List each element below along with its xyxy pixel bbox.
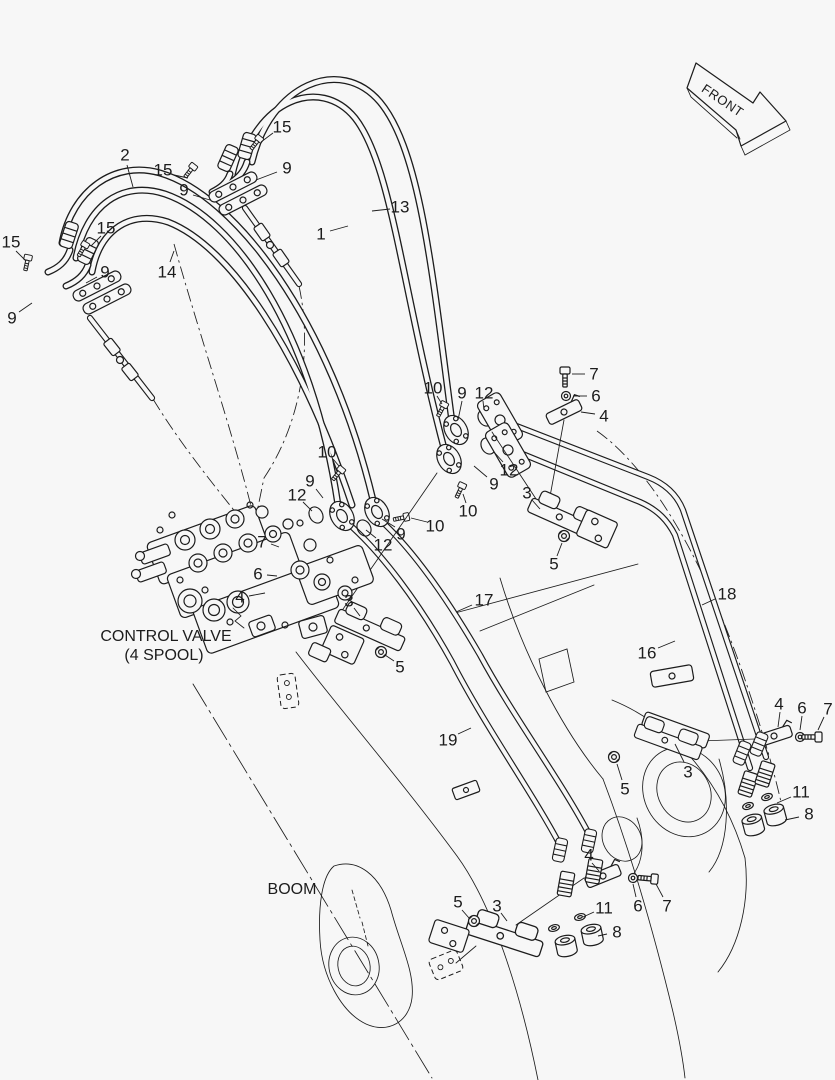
parts-diagram: FRONT CONTROL VALVE (4 SPOOL) BOOM 21515… bbox=[0, 0, 835, 1080]
callout-9-10: 9 bbox=[7, 309, 16, 328]
callout-9-13: 9 bbox=[457, 384, 466, 403]
callout-10-24: 10 bbox=[426, 517, 445, 536]
callout-1-6: 1 bbox=[316, 225, 325, 244]
callout-11-43: 11 bbox=[792, 783, 810, 802]
callout-16-36: 16 bbox=[638, 644, 657, 663]
control-valve-label-line2: (4 SPOOL) bbox=[124, 647, 203, 664]
callout-9-4: 9 bbox=[179, 181, 188, 200]
callout-8-44: 8 bbox=[804, 805, 813, 824]
callout-15-8: 15 bbox=[97, 219, 116, 238]
callout-4-40: 4 bbox=[774, 695, 783, 714]
callout-10-20: 10 bbox=[318, 443, 337, 462]
callout-5-33: 5 bbox=[395, 658, 404, 677]
callout-4-45: 4 bbox=[584, 846, 593, 865]
callout-12-22: 12 bbox=[288, 486, 307, 505]
callout-3-51: 3 bbox=[492, 897, 501, 916]
nut-5 bbox=[469, 916, 480, 927]
callout-2-0: 2 bbox=[120, 146, 129, 165]
callout-6-46: 6 bbox=[633, 897, 642, 916]
callout-6-16: 6 bbox=[591, 387, 600, 406]
callout-19-37: 19 bbox=[439, 731, 458, 750]
callout-5-50: 5 bbox=[453, 893, 462, 912]
washer-6 bbox=[562, 392, 571, 401]
callout-10-12: 10 bbox=[424, 379, 443, 398]
callout-11-48: 11 bbox=[595, 899, 613, 918]
callout-5-28: 5 bbox=[549, 555, 558, 574]
callout-3-32: 3 bbox=[344, 592, 353, 611]
callout-12-18: 12 bbox=[500, 461, 519, 480]
callout-10-23: 10 bbox=[459, 502, 478, 521]
callout-12-14: 12 bbox=[475, 384, 494, 403]
callout-3-38: 3 bbox=[683, 763, 692, 782]
nut-5 bbox=[609, 752, 620, 763]
callout-15-7: 15 bbox=[2, 233, 21, 252]
callout-7-42: 7 bbox=[823, 700, 832, 719]
callout-9-3: 9 bbox=[282, 159, 291, 178]
boom-label: BOOM bbox=[268, 881, 317, 898]
callout-8-49: 8 bbox=[612, 923, 621, 942]
callout-6-41: 6 bbox=[797, 699, 806, 718]
washer-6 bbox=[629, 874, 638, 883]
callout-9-21: 9 bbox=[305, 472, 314, 491]
callout-4-17: 4 bbox=[599, 407, 608, 426]
callout-14-11: 14 bbox=[158, 263, 177, 282]
nut-5 bbox=[376, 647, 387, 658]
boom-piping-diagram: FRONT CONTROL VALVE (4 SPOOL) BOOM 21515… bbox=[0, 0, 835, 1080]
callout-12-26: 12 bbox=[374, 536, 393, 555]
callout-9-25: 9 bbox=[396, 525, 405, 544]
callout-5-39: 5 bbox=[620, 780, 629, 799]
nut-5 bbox=[559, 531, 570, 542]
callout-15-1: 15 bbox=[154, 161, 173, 180]
callout-7-15: 7 bbox=[589, 365, 598, 384]
callout-13-5: 13 bbox=[391, 198, 410, 217]
callout-15-2: 15 bbox=[273, 118, 292, 137]
callout-4-31: 4 bbox=[235, 588, 244, 607]
callout-9-9: 9 bbox=[100, 263, 109, 282]
callout-18-35: 18 bbox=[718, 585, 737, 604]
callout-7-47: 7 bbox=[662, 897, 671, 916]
control-valve-label-line1: CONTROL VALVE bbox=[100, 628, 231, 645]
callout-3-27: 3 bbox=[522, 484, 531, 503]
callout-7-29: 7 bbox=[257, 533, 266, 552]
callout-17-34: 17 bbox=[475, 591, 494, 610]
callout-6-30: 6 bbox=[253, 565, 262, 584]
callout-9-19: 9 bbox=[489, 475, 498, 494]
